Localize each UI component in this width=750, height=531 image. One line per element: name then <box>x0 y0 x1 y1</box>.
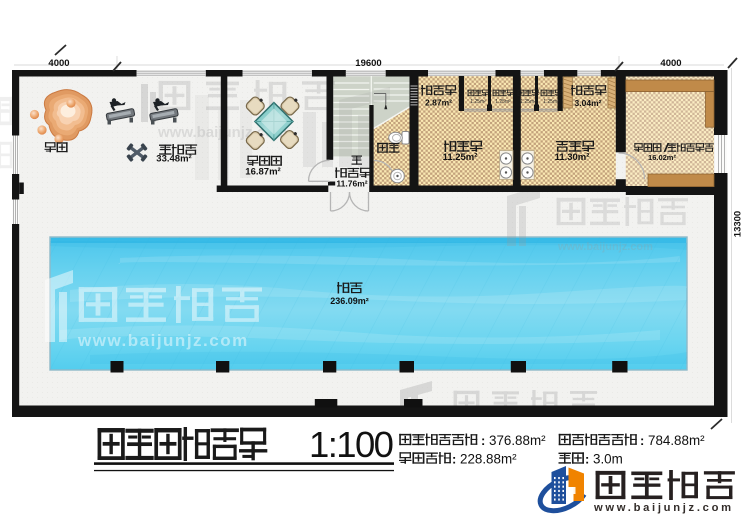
svg-text:19600: 19600 <box>355 58 381 69</box>
svg-text:13300: 13300 <box>733 211 744 237</box>
svg-text::: : <box>585 452 589 467</box>
svg-text:1.25m²: 1.25m² <box>520 99 536 105</box>
svg-text:3.04m²: 3.04m² <box>575 98 602 108</box>
svg-text:3.0m: 3.0m <box>593 452 623 467</box>
svg-text:16.02m²: 16.02m² <box>648 153 676 162</box>
svg-text:784.88m²: 784.88m² <box>648 433 705 448</box>
svg-text:www.baijunjz.com: www.baijunjz.com <box>557 241 653 253</box>
svg-text:1.25m²: 1.25m² <box>470 99 486 105</box>
svg-text:www.baijunjz.com: www.baijunjz.com <box>77 331 249 350</box>
svg-text:228.88m²: 228.88m² <box>460 452 517 467</box>
svg-text:www.baijunjz.com: www.baijunjz.com <box>593 502 734 514</box>
svg-text:11.76m²: 11.76m² <box>336 179 367 189</box>
svg-text::: : <box>452 452 456 467</box>
svg-text:33.48m²: 33.48m² <box>156 154 191 165</box>
svg-text:1.25m²: 1.25m² <box>543 99 559 105</box>
svg-text:16.87m²: 16.87m² <box>245 167 280 178</box>
svg-text::: : <box>640 433 644 448</box>
svg-text:2.87m²: 2.87m² <box>425 98 452 108</box>
svg-text:376.88m²: 376.88m² <box>489 433 546 448</box>
svg-text:236.09m²: 236.09m² <box>330 296 369 306</box>
svg-text:4000: 4000 <box>48 58 69 69</box>
svg-text::: : <box>481 433 485 448</box>
svg-text:4000: 4000 <box>660 58 681 69</box>
svg-text:1:100: 1:100 <box>309 424 393 465</box>
svg-text:1.25m²: 1.25m² <box>495 99 511 105</box>
svg-text:11.25m²: 11.25m² <box>443 152 478 163</box>
svg-text:11.30m²: 11.30m² <box>555 152 590 163</box>
